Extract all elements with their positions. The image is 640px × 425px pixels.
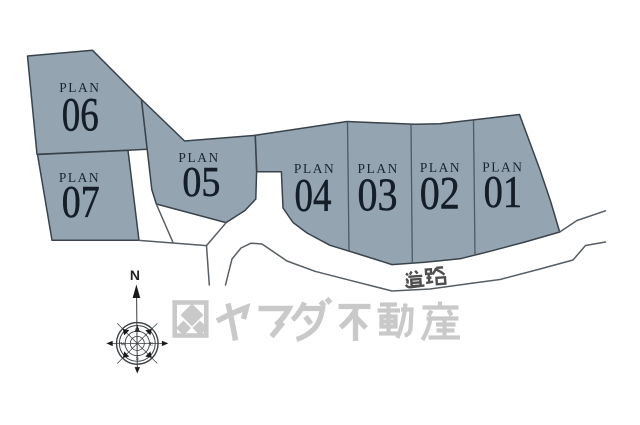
svg-text:01: 01: [484, 166, 523, 217]
svg-text:05: 05: [182, 159, 220, 206]
svg-text:07: 07: [62, 177, 100, 227]
svg-text:S: S: [136, 356, 139, 362]
svg-text:N: N: [135, 327, 139, 333]
svg-text:06: 06: [62, 90, 99, 142]
svg-text:E: E: [150, 342, 154, 348]
svg-text:02: 02: [420, 168, 460, 219]
svg-text:W: W: [120, 342, 126, 348]
svg-text:04: 04: [295, 170, 332, 221]
svg-text:03: 03: [358, 170, 398, 221]
svg-text:N: N: [130, 267, 140, 283]
